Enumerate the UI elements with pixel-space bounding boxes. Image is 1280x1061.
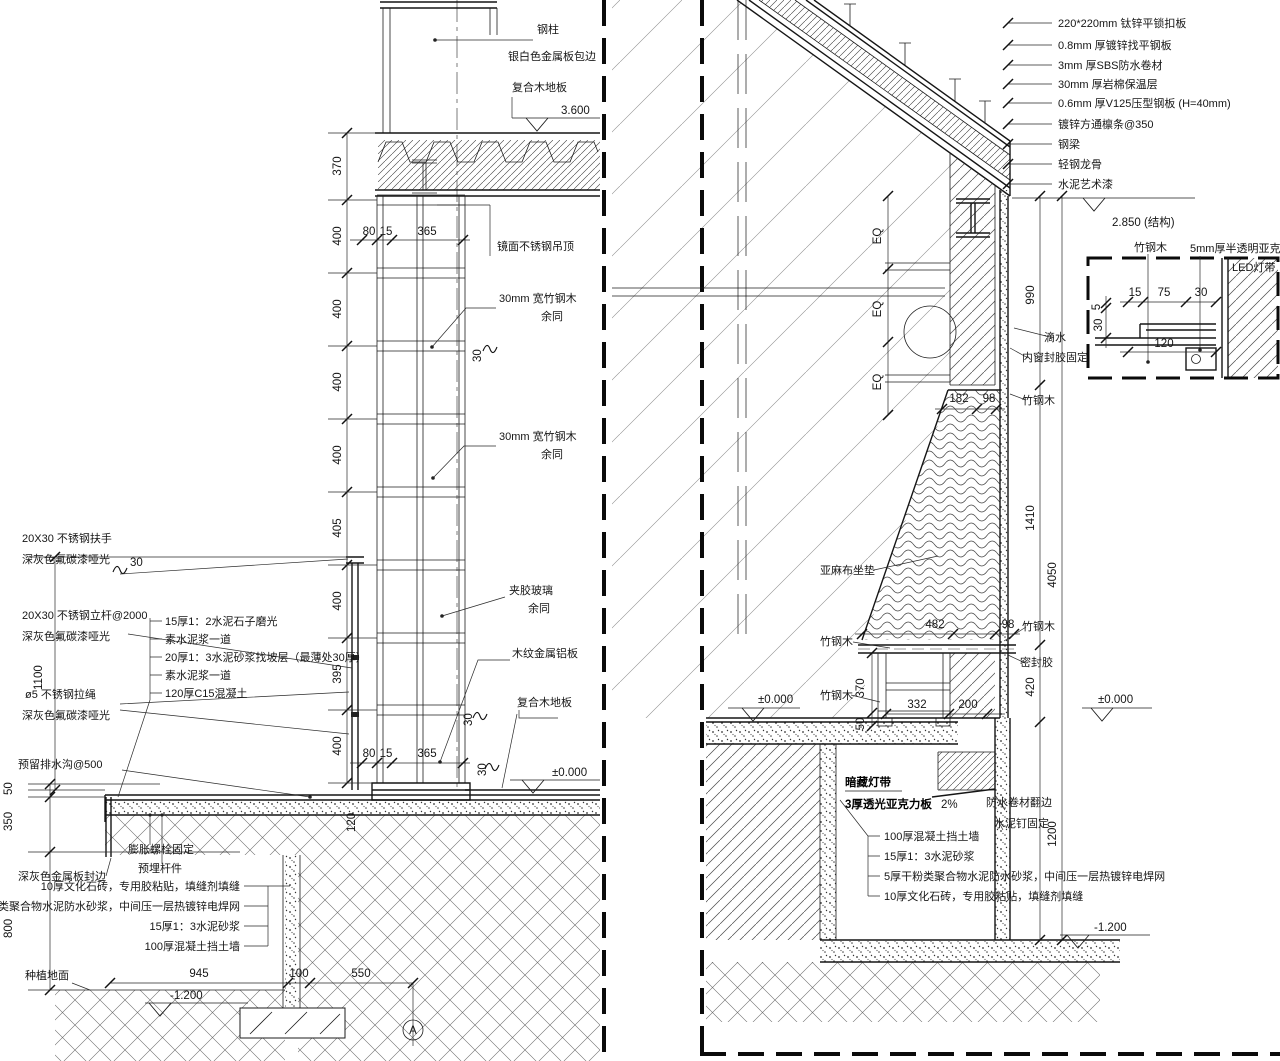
dim-30-inset: 30 [1195,287,1208,299]
label-bamboo-seat: 竹钢木 [820,634,853,648]
label-acrylic-5mm: 5mm厚半透明亚克力 [1190,241,1280,255]
dim-eq-2: EQ [872,301,884,318]
wall-layer-r3: 5厚干粉类聚合物水泥防水砂浆，中间压一层热镀锌电焊网 [884,869,1165,883]
roof-layer-5: 0.6mm 厚V125压型钢板 (H=40mm) [1058,96,1231,110]
label-bolt: 膨胀螺栓固定 [128,842,194,856]
label-cushion: 亚麻布坐垫 [820,563,875,577]
dim-80-top: 80 [363,226,376,238]
chain-400-2: 400 [332,299,344,318]
dim-350: 350 [3,812,15,831]
chain-400-5: 400 [332,591,344,610]
label-paint-2: 深灰色氟碳漆哑光 [22,629,110,643]
roof-layer-4: 30mm 厚岩棉保温层 [1058,77,1158,91]
label-led-strip: LED灯带 [1232,261,1275,274]
label-steel-column: 钢柱 [537,22,559,36]
dim-30-b: 30 [463,713,475,726]
dim-15-inset: 15 [1129,287,1142,299]
elevation-2850: 2.850 (结构) [1112,215,1175,229]
dim-990: 990 [1025,285,1037,304]
chain-400-6: 400 [332,736,344,755]
roof-layer-3: 3mm 厚SBS防水卷材 [1058,58,1163,72]
label-embed: 预埋杆件 [138,861,182,875]
floor-layer-2: 素水泥浆一道 [165,632,231,646]
chain-400-1: 400 [332,226,344,245]
roof-layer-8: 轻钢龙骨 [1058,157,1102,171]
dim-100: 100 [289,968,308,980]
label-slope-2pct: 2% [941,799,958,811]
dim-30-a: 30 [472,349,484,362]
wall-layer-r2: 15厚1：3水泥砂浆 [884,849,974,863]
label-hidden-light: 暗藏灯带 [845,775,891,789]
dim-420: 420 [1025,677,1037,696]
floor-layer-5: 120厚C15混凝土 [165,686,248,700]
dim-482: 482 [925,619,944,631]
label-bamboo-right: 竹钢木 [1022,619,1055,633]
dim-1410: 1410 [1025,505,1037,531]
dim-80-bot: 80 [363,748,376,760]
dim-30-c: 30 [477,763,489,776]
wall-layer-r4: 10厚文化石砖，专用胶粘贴，填缝剂填缝 [884,889,1083,903]
dim-5-inset: 5 [1091,304,1103,310]
dim-365-top: 365 [417,226,436,238]
chain-400-4: 400 [332,445,344,464]
label-bamboo-leg: 竹钢木 [820,688,853,702]
chain-370: 370 [332,156,344,175]
label-sealant: 密封胶 [1020,655,1053,669]
elevation-3600: 3.600 [561,105,590,117]
wall-layer-l3: 15厚1：3水泥砂浆 [150,919,240,933]
dim-365-bot: 365 [417,748,436,760]
dim-15-top: 15 [380,226,393,238]
floor-layer-3: 20厚1：3水泥砂浆找坡层（最薄处30厚） [165,650,367,664]
dim-98-top: 98 [983,393,996,405]
dim-75-inset: 75 [1158,287,1171,299]
elevation-m1200-right: -1.200 [1094,922,1127,934]
label-wp-flange: 防水卷材翻边 [986,795,1052,809]
wall-layer-l2: 5厚干粉类聚合物水泥防水砂浆，中间压一层热镀锌电焊网 [0,899,240,913]
dim-1100: 1100 [33,665,45,690]
label-wood-floor-top: 复合木地板 [512,80,567,94]
label-drain: 预留排水沟@500 [18,757,103,771]
roof-layer-6: 镀锌方通檩条@350 [1058,117,1154,131]
wall-layer-l1: 10厚文化石砖，专用胶粘贴，填缝剂填缝 [41,879,240,893]
dim-200: 200 [958,699,977,711]
roof-layer-2: 0.8mm 厚镀锌找平钢板 [1058,38,1172,52]
roof-layer-7: 钢梁 [1058,137,1080,151]
label-metal-edging: 银白色金属板包边 [508,49,596,63]
chain-405: 405 [332,518,344,537]
label-inner-seal: 内窗封胶固定 [1022,350,1088,364]
wall-layer-l4: 100厚混凝土挡土墙 [145,939,240,953]
dim-120-inset: 120 [1154,338,1173,350]
chain-400-3: 400 [332,372,344,391]
dim-945: 945 [189,968,208,980]
drawing-canvas: 钢柱 银白色金属板包边 复合木地板 3.600 镜面不锈钢吊顶 30mm 宽竹钢… [0,0,1280,1061]
dim-50-bench: 50 [855,718,867,731]
grid-bubble-a: A [409,1025,417,1037]
label-wood-floor-bottom: 复合木地板 [517,695,572,709]
label-paint-1: 深灰色氟碳漆哑光 [22,552,110,566]
dim-98-seat: 98 [1002,619,1015,631]
dim-800: 800 [3,919,15,938]
label-wood-metal-panel: 木纹金属铝板 [512,646,578,660]
label-planting-ground: 种植地面 [25,968,69,982]
dim-eq-3: EQ [872,374,884,391]
dim-550: 550 [351,968,370,980]
dim-30-rail: 30 [130,557,143,569]
label-rail-post: 20X30 不锈钢立杆@2000 [22,608,148,622]
chain-395: 395 [332,664,344,683]
dim-50-left: 50 [3,782,15,795]
label-acrylic-3mm: 3厚透光亚克力板 [845,797,932,811]
label-same-2: 余同 [541,447,563,461]
elevation-0-right-b: ±0.000 [1098,694,1133,706]
dim-370-bench: 370 [855,678,867,697]
label-same-1: 余同 [541,309,563,323]
label-drip: 滴水 [1044,330,1066,344]
dim-eq-1: EQ [872,228,884,245]
label-same-3: 余同 [528,601,550,615]
label-mirror-ceiling: 镜面不锈钢吊顶 [497,239,574,253]
label-bamboo-30-2: 30mm 宽竹钢木 [499,429,577,443]
wall-layer-r1: 100厚混凝土挡土墙 [884,829,979,843]
dim-4050: 4050 [1047,562,1059,588]
floor-layer-1: 15厚1：2水泥石子磨光 [165,614,277,628]
roof-layer-9: 水泥艺术漆 [1058,178,1113,191]
dim-30-inset-v: 30 [1093,319,1105,332]
dim-120: 120 [346,813,358,832]
label-handrail: 20X30 不锈钢扶手 [22,531,112,545]
label-laminated-glass: 夹胶玻璃 [509,583,553,597]
elevation-m1200-left: -1.200 [170,990,203,1002]
label-paint-3: 深灰色氟碳漆哑光 [22,708,110,722]
cad-section-drawing: 钢柱 银白色金属板包边 复合木地板 3.600 镜面不锈钢吊顶 30mm 宽竹钢… [0,0,1280,1061]
label-bamboo-30-1: 30mm 宽竹钢木 [499,291,577,305]
label-bamboo-inset: 竹钢木 [1134,240,1167,254]
roof-layer-1: 220*220mm 钛锌平锁扣板 [1058,16,1186,30]
elevation-0-right-a: ±0.000 [758,694,793,706]
dim-182: 182 [949,393,968,405]
floor-layer-4: 素水泥浆一道 [165,668,231,682]
label-cement-nail: 水泥钉固定 [994,816,1049,830]
dim-1200: 1200 [1047,821,1059,847]
dim-332: 332 [907,699,926,711]
dim-15-bot: 15 [380,748,393,760]
elevation-0-left: ±0.000 [552,767,587,779]
label-bamboo-top: 竹钢木 [1022,393,1055,407]
